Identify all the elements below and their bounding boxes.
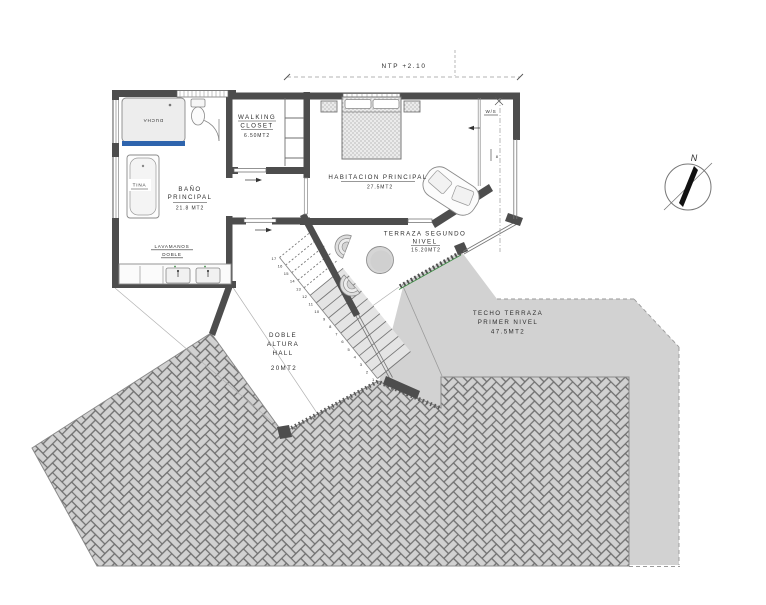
floor-plan-svg: 1716151413121110987654321 <box>0 0 766 605</box>
stair-number: 7 <box>335 332 338 337</box>
svg-text:21.8 MT2: 21.8 MT2 <box>176 206 204 212</box>
svg-text:6.50MT2: 6.50MT2 <box>244 133 270 139</box>
stair-number: 3 <box>360 362 363 367</box>
terrace-railing <box>463 222 517 255</box>
shower-label: DUCHA <box>143 118 163 123</box>
svg-text:HALL: HALL <box>272 350 293 357</box>
stair-number: 13 <box>296 286 302 291</box>
svg-text:15.20MT2: 15.20MT2 <box>411 248 441 254</box>
bedroom-partition <box>478 98 480 186</box>
stair-number: 11 <box>308 301 313 306</box>
stair-number: 9 <box>323 317 326 322</box>
pillow <box>373 100 399 109</box>
ws-label: W/S <box>484 109 498 115</box>
closet-shelves <box>285 98 304 166</box>
pillow <box>345 100 371 109</box>
svg-text:LAVAMANOS: LAVAMANOS <box>154 244 189 249</box>
svg-text:PRINCIPAL: PRINCIPAL <box>168 194 213 201</box>
tub-label: TINA <box>133 183 147 188</box>
ntp-dimension-label: NTP +2.10 <box>381 63 426 70</box>
bath-top-window <box>177 91 228 98</box>
nightstand-left <box>321 101 337 112</box>
stair-number: 10 <box>314 309 320 314</box>
svg-text:TECHO TERRAZA: TECHO TERRAZA <box>473 310 543 317</box>
svg-text:W/S: W/S <box>485 109 496 114</box>
sink-label: LAVAMANOS DOBLE <box>151 244 193 258</box>
stair-tread <box>280 231 313 258</box>
svg-text:DOBLE: DOBLE <box>269 332 297 339</box>
bathtub: TINA <box>127 155 159 218</box>
shower-glass-blue <box>122 141 185 146</box>
hall-wall <box>209 283 233 336</box>
stair-number: 17 <box>271 256 277 261</box>
hall-sliding-door <box>244 219 276 223</box>
stair-number: 12 <box>302 294 308 299</box>
floor-plan-page: 1716151413121110987654321 <box>0 0 766 605</box>
stair-number: 4 <box>354 354 357 359</box>
svg-text:WALKING: WALKING <box>238 114 276 121</box>
svg-text:BAÑO: BAÑO <box>178 186 201 193</box>
svg-text:20MT2: 20MT2 <box>271 365 297 372</box>
hall-label: DOBLE ALTURA HALL 20MT2 <box>267 332 299 372</box>
svg-text:DOBLE: DOBLE <box>162 252 182 257</box>
svg-text:47.5MT2: 47.5MT2 <box>491 329 525 336</box>
door-tag: 8 <box>491 149 499 161</box>
svg-text:TERRAZA SEGUNDO: TERRAZA SEGUNDO <box>384 231 467 238</box>
stair-number: 16 <box>278 264 284 269</box>
svg-text:HABITACION PRINCIPAL: HABITACION PRINCIPAL <box>328 174 427 181</box>
bedroom-label: HABITACION PRINCIPAL 27.5MT2 <box>328 174 427 191</box>
bed <box>342 97 401 159</box>
stair-number: 14 <box>290 279 296 284</box>
stair-number: 1 <box>372 377 375 382</box>
closet-label: WALKING CLOSET 6.50MT2 <box>238 114 276 139</box>
stair-number: 6 <box>341 339 344 344</box>
stair-tread <box>286 238 319 265</box>
svg-text:NIVEL: NIVEL <box>413 239 438 246</box>
compass-needle <box>679 166 698 207</box>
nightstand-right <box>404 101 420 112</box>
svg-text:PRIMER NIVEL: PRIMER NIVEL <box>478 319 538 326</box>
terrace-sliding-door <box>408 219 432 223</box>
svg-text:8: 8 <box>496 154 499 159</box>
dimension-line: NTP +2.10 <box>284 50 523 80</box>
stair-number: 2 <box>366 369 369 374</box>
door-swing-arrow <box>245 178 272 232</box>
glass-wall <box>514 139 517 219</box>
north-compass: N <box>664 153 712 210</box>
bathroom-label: BAÑO PRINCIPAL 21.8 MT2 <box>168 186 213 212</box>
stair-number: 15 <box>284 271 290 276</box>
stair-number: 8 <box>329 324 332 329</box>
svg-text:CLOSET: CLOSET <box>240 123 273 130</box>
svg-text:27.5MT2: 27.5MT2 <box>367 185 393 191</box>
svg-text:ALTURA: ALTURA <box>267 341 299 348</box>
stair-number: 5 <box>347 347 350 352</box>
terrace-table <box>367 247 394 274</box>
toilet <box>191 99 205 125</box>
closet-sliding-door <box>234 169 266 173</box>
bedroom-pocket-door <box>304 178 307 214</box>
terrace-chair <box>331 231 351 258</box>
terrace-label: TERRAZA SEGUNDO NIVEL 15.20MT2 <box>384 231 467 254</box>
shower: DUCHA <box>122 98 185 146</box>
double-sink-vanity <box>119 264 231 284</box>
shower-drain-icon <box>169 104 172 107</box>
north-label: N <box>691 153 698 163</box>
